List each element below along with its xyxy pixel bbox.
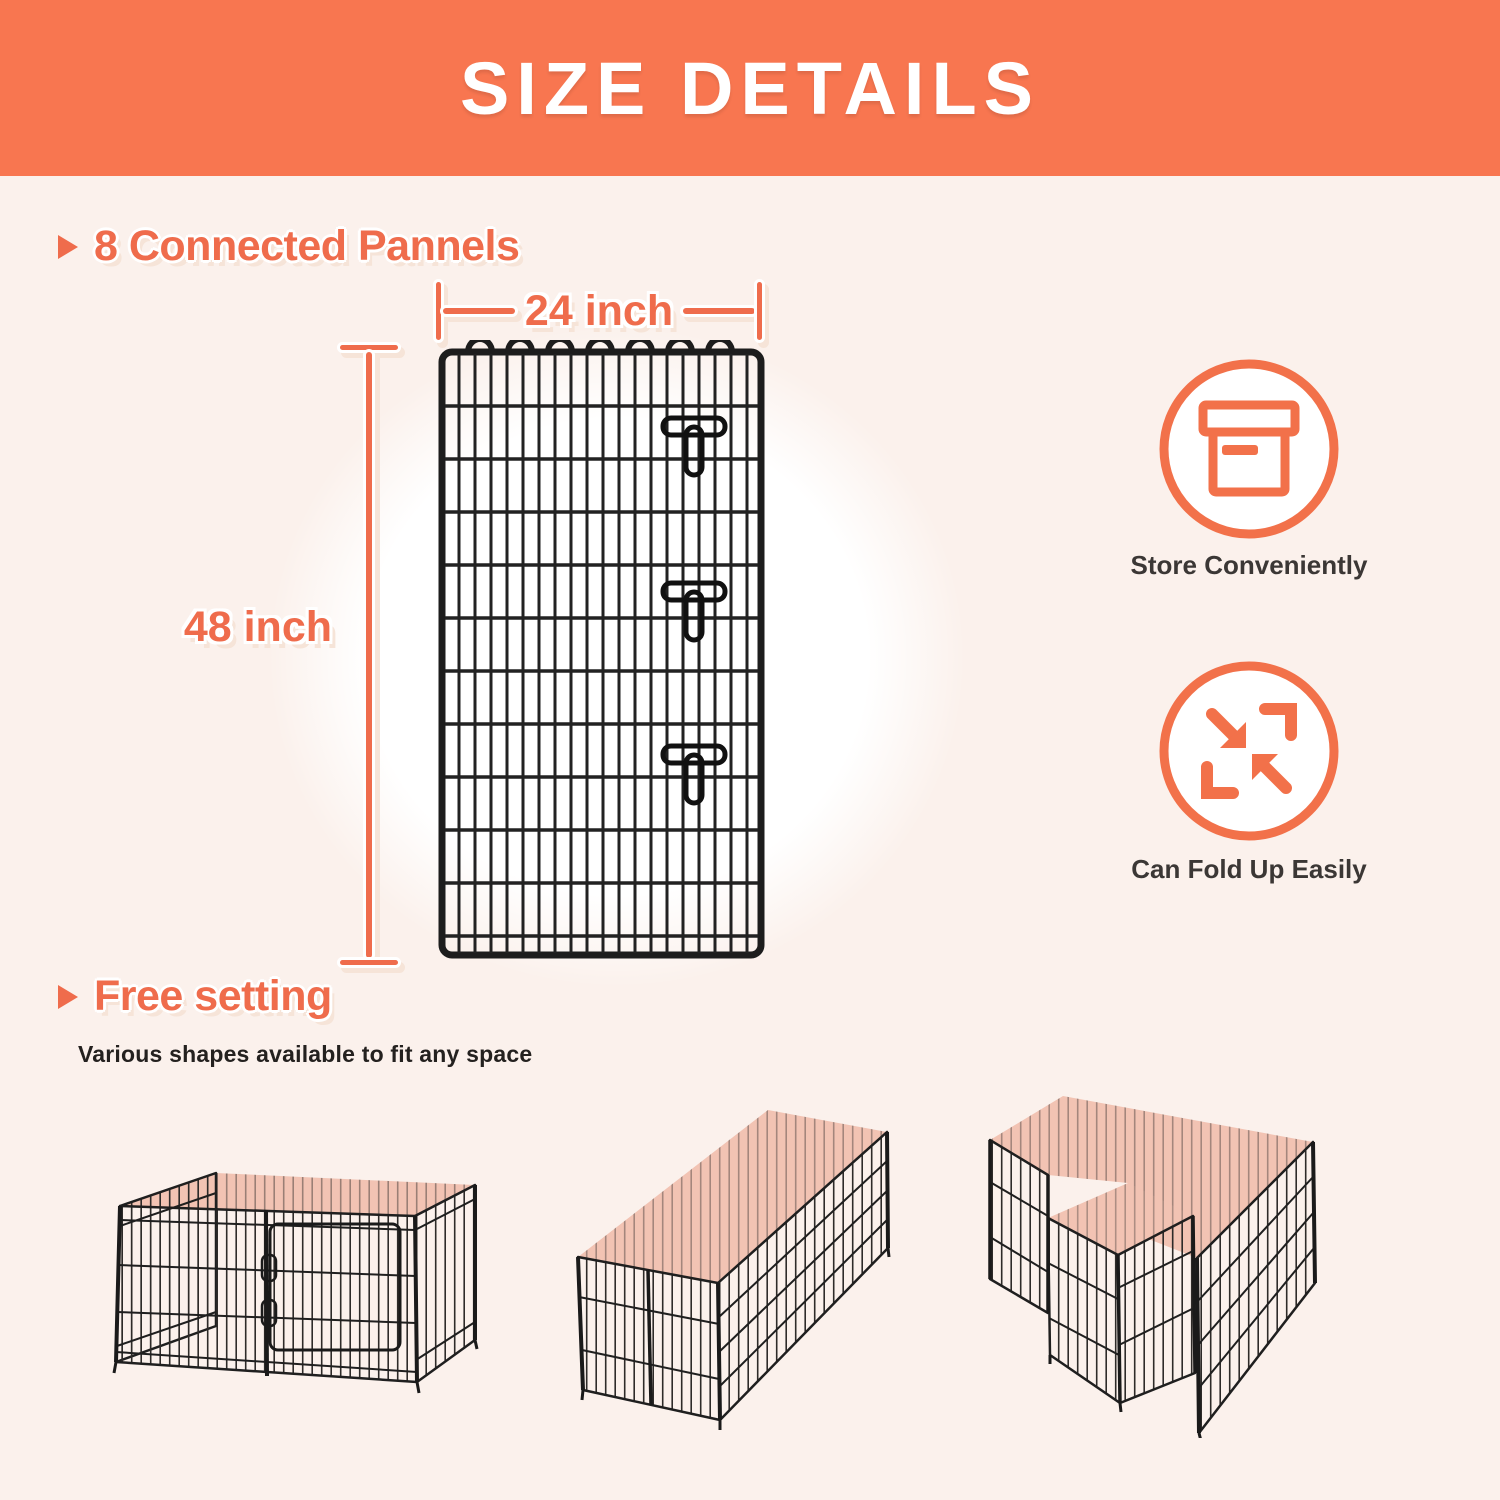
dimension-endcap — [757, 282, 762, 340]
width-dimension-label: 24 inch — [525, 287, 673, 336]
t-shape-pen-illustration — [978, 1083, 1328, 1438]
wire-panel-illustration — [435, 340, 768, 965]
dimension-endcap — [340, 960, 398, 965]
dimension-line — [683, 308, 755, 314]
dimension-line — [443, 308, 515, 314]
header-banner: SIZE DETAILS — [0, 0, 1500, 176]
free-setting-description: Various shapes available to fit any spac… — [78, 1041, 532, 1068]
panels-heading-text: 8 Connected Pannels — [94, 222, 519, 271]
long-rectangle-pen-illustration — [563, 1096, 897, 1436]
height-dimension-label: 48 inch — [130, 603, 332, 652]
square-pen-illustration — [70, 1150, 494, 1435]
storage-box-icon — [1154, 354, 1344, 544]
width-dimension: 24 inch — [436, 282, 762, 340]
feature-label-store: Store Conveniently — [1099, 550, 1399, 581]
fold-arrows-icon — [1154, 656, 1344, 846]
size-details-infographic: SIZE DETAILS 8 Connected Pannels 24 inch… — [0, 0, 1500, 1500]
dimension-line — [366, 352, 372, 958]
page-title: SIZE DETAILS — [460, 46, 1040, 131]
free-setting-section-heading: Free setting — [58, 972, 332, 1021]
triangle-bullet-icon — [58, 235, 78, 259]
dimension-endcap — [436, 282, 441, 340]
dimension-endcap — [340, 345, 398, 350]
feature-label-fold: Can Fold Up Easily — [1099, 854, 1399, 885]
height-dimension — [340, 345, 398, 965]
free-setting-heading-text: Free setting — [94, 972, 332, 1021]
triangle-bullet-icon — [58, 985, 78, 1009]
panels-section-heading: 8 Connected Pannels — [58, 222, 519, 271]
